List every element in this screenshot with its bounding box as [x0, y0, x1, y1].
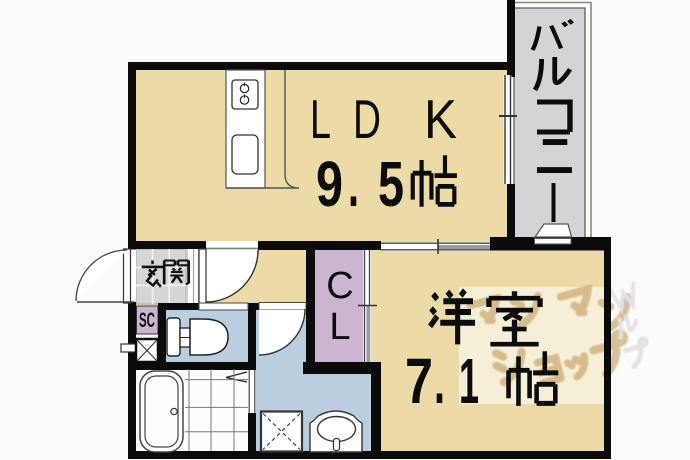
- svg-text:K: K: [424, 88, 457, 150]
- svg-text:.: .: [348, 148, 359, 220]
- svg-text:7: 7: [405, 345, 433, 417]
- svg-text:.: .: [434, 345, 445, 417]
- svg-text:SC: SC: [139, 309, 155, 332]
- svg-text:C: C: [326, 265, 353, 307]
- svg-text:L: L: [310, 88, 331, 150]
- svg-text:5: 5: [378, 148, 404, 220]
- svg-text:D: D: [353, 88, 381, 150]
- svg-text:9: 9: [316, 148, 343, 220]
- svg-text:L: L: [329, 306, 350, 348]
- svg-text:1: 1: [459, 345, 479, 417]
